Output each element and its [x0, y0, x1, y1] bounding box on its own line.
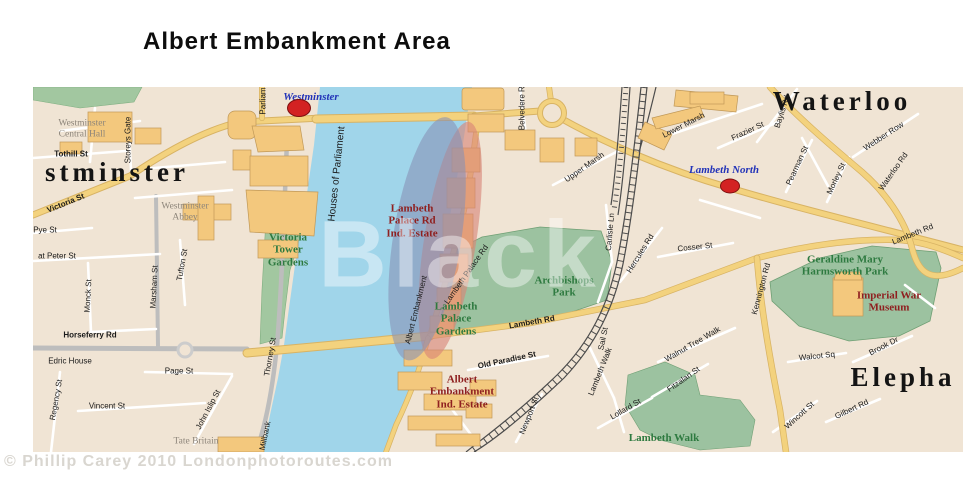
poi-label: Albert Embankment Ind. Estate [430, 374, 494, 411]
park-label: Lambeth Palace Gardens [435, 301, 478, 338]
street-label: Baylis Rd [774, 95, 793, 130]
park-label: Lambeth Walk [629, 432, 699, 444]
street-label: Albert Embankment [404, 275, 430, 345]
street-label: Sail St [597, 327, 611, 351]
street-label: Tufton St [176, 248, 190, 281]
street-label: Frazier St [730, 121, 765, 144]
street-label: Newport St [518, 396, 541, 436]
page-title: Albert Embankment Area [143, 28, 451, 56]
street-label: Millbank [259, 421, 274, 452]
street-label: Brook Dr [868, 336, 900, 358]
street-label: Marsham St [149, 265, 160, 309]
street-label: at Peter St [38, 253, 76, 262]
street-label: Monck St [84, 279, 95, 313]
street-label: Waterloo Rd [878, 151, 911, 192]
street-label: Wincott St [783, 400, 816, 431]
copyright-text: © Phillip Carey 2010 Londonphotoroutes.c… [4, 453, 393, 471]
street-label: Lambeth Rd [508, 315, 555, 332]
street-label: Walcot Sq [799, 351, 836, 364]
area-label: Elepha [850, 362, 955, 392]
street-label: Vincent St [89, 403, 125, 412]
street-label: Upper Marsh [563, 151, 606, 185]
street-label: Horseferry Rd [63, 332, 116, 341]
street-label: Tothill St [54, 151, 88, 160]
street-label: Old Paradise St [477, 350, 537, 371]
street-label: Storeys Gate [125, 117, 134, 164]
street-label: Thorney St [263, 337, 279, 377]
street-label: Houses of Parliament [326, 126, 347, 222]
street-label: Lollard St [609, 398, 643, 423]
street-label: Regency St [49, 379, 65, 421]
street-label: Victoria St [46, 192, 86, 215]
street-label: John Islip St [195, 389, 223, 432]
street-label: Gilbert Rd [834, 398, 870, 421]
park-label: Geraldine Mary Harmsworth Park [802, 254, 888, 279]
street-label: Fitzalan St [666, 365, 702, 394]
street-label: Edric House [48, 358, 92, 367]
gray-label: Westminster Abbey [161, 201, 208, 222]
street-label: Page St [165, 368, 193, 377]
street-label: Lambeth Walk [587, 347, 614, 397]
street-label: Kennington Rd [751, 262, 773, 315]
poi-label: Imperial War Museum [857, 290, 921, 315]
street-label: Lambeth Palace Rd [443, 244, 491, 307]
area-label: stminster [45, 157, 189, 187]
map-label-layer: stminsterWaterlooElephaWestminsterLambet… [33, 87, 963, 452]
station-label: Lambeth North [689, 164, 759, 176]
street-label: Lambeth Rd [891, 223, 935, 248]
park-label: Archbishops Park [534, 275, 593, 300]
street-label: Lower Marsh [661, 112, 706, 141]
gray-label: Westminster Central Hall [58, 118, 105, 139]
street-label: Walnut Tree Walk [664, 325, 723, 364]
street-label: Morley St [826, 162, 848, 196]
street-label: Pye St [33, 227, 57, 236]
station-dot [720, 179, 740, 194]
area-label: Waterloo [773, 87, 911, 116]
street-label: Belvedere Rd [519, 87, 528, 130]
street-label: Carlisle Ln [605, 213, 617, 251]
street-label: Parliam [260, 87, 269, 114]
gray-label: Tate Britain [174, 437, 219, 448]
map-area: stminsterWaterlooElephaWestminsterLambet… [33, 87, 963, 452]
street-label: Webber Row [862, 121, 906, 154]
street-label: Pearman St [785, 145, 811, 187]
park-label: Victoria Tower Gardens [268, 232, 308, 269]
street-label: Cosser St [677, 242, 713, 255]
street-label: Hercules Rd [626, 233, 657, 275]
station-dot [287, 99, 311, 117]
poi-label: Lambeth Palace Rd Ind. Estate [386, 203, 437, 240]
